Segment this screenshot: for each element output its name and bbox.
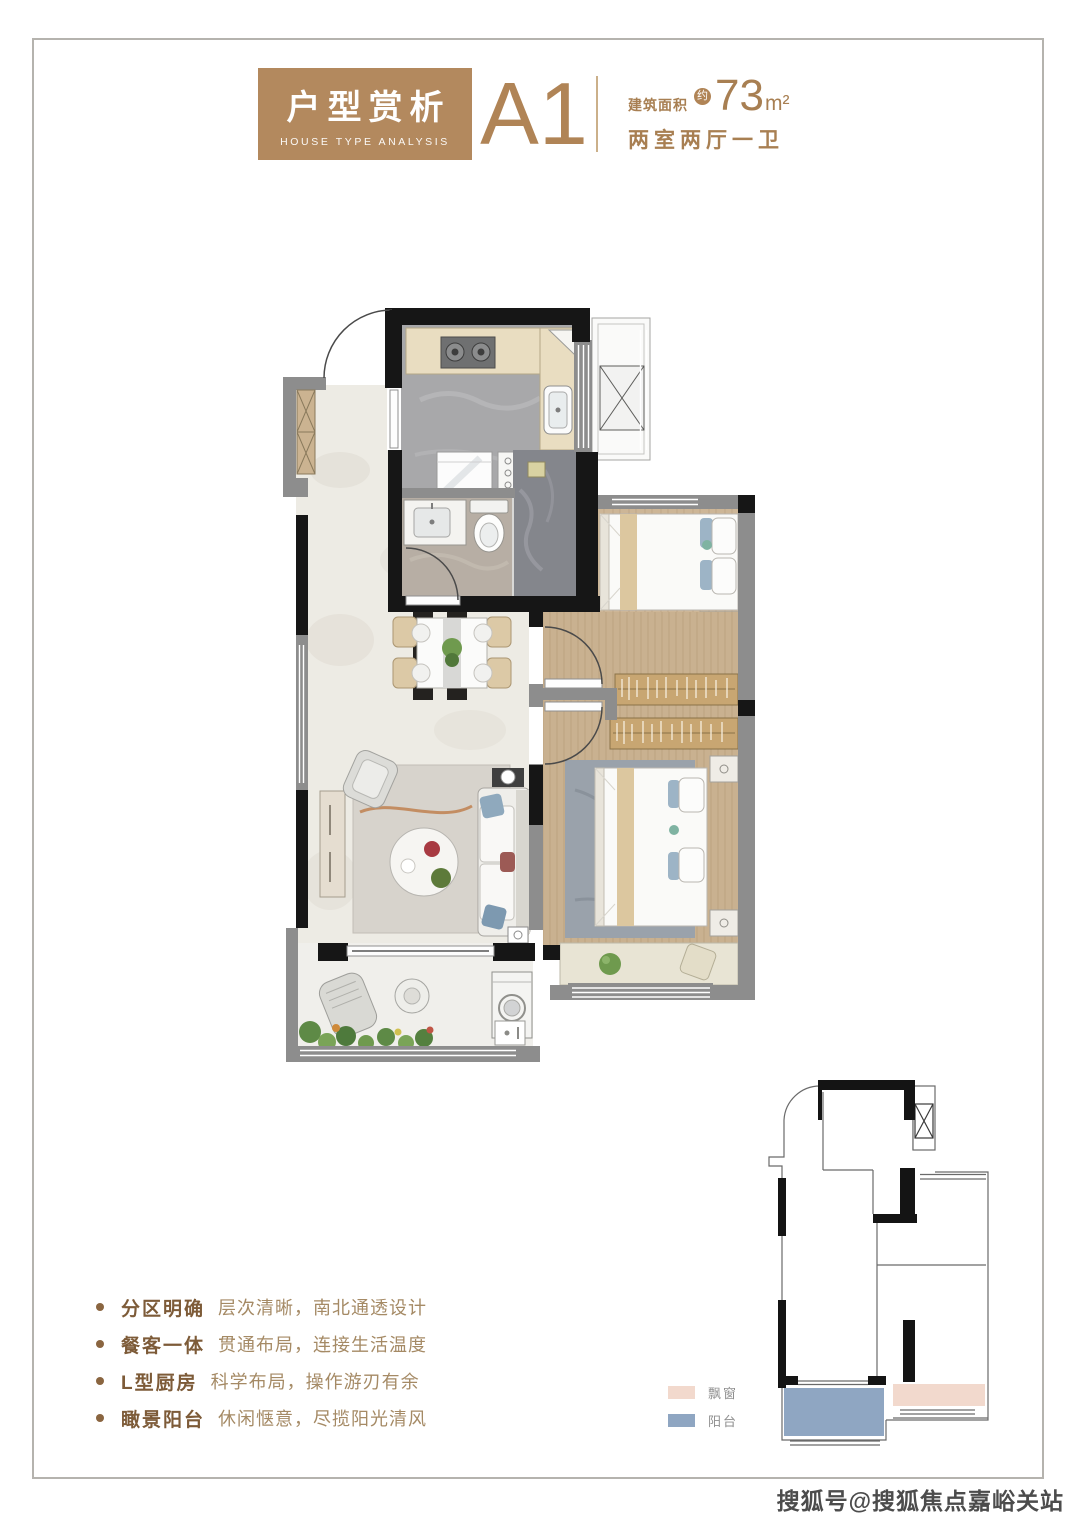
kitchen-sink-icon	[544, 386, 572, 434]
watermark: 搜狐号@搜狐焦点嘉峪关站	[777, 1482, 1064, 1516]
bedroom2-bed	[600, 514, 738, 610]
feature-item: 餐客一体 贯通布局，连接生活温度	[96, 1334, 427, 1354]
room-layout: 两室两厅一卫	[628, 124, 789, 154]
balcony-sink-icon	[495, 1021, 525, 1045]
page-title: 户型赏析	[258, 80, 472, 129]
mini-balcony	[784, 1388, 884, 1445]
feature-label: 瞰景阳台	[121, 1405, 205, 1432]
feature-label: L型厨房	[121, 1368, 198, 1395]
header-specs: 建筑面积 约 73 m² 两室两厅一卫	[612, 68, 789, 160]
balcony-table	[395, 979, 429, 1013]
mini-bay-window	[893, 1384, 985, 1414]
legend-balcony: 阳台	[668, 1411, 738, 1430]
stove-icon	[441, 337, 495, 368]
feature-item: L型厨房 科学布局，操作游刃有余	[96, 1371, 427, 1391]
header: 户型赏析 HOUSE TYPE ANALYSIS A1 建筑面积 约 73 m²…	[258, 68, 789, 160]
approx-badge: 约	[694, 88, 711, 105]
shower-room-area	[513, 450, 576, 608]
mini-walls	[778, 1080, 917, 1388]
sofa	[478, 788, 530, 936]
entry-door	[324, 310, 392, 378]
feature-list: 分区明确 层次清晰，南北通透设计 餐客一体 贯通布局，连接生活温度 L型厨房 科…	[96, 1297, 427, 1445]
bay-window-label: 飘窗	[708, 1383, 738, 1402]
bullet-icon	[96, 1340, 104, 1348]
page-subtitle: HOUSE TYPE ANALYSIS	[258, 136, 472, 148]
floor-plan	[278, 300, 780, 1068]
balcony-sliding-door	[347, 946, 494, 956]
legend-bay-window: 飘窗	[668, 1383, 738, 1402]
nightstand-top	[710, 756, 738, 782]
feature-item: 分区明确 层次清晰，南北通透设计	[96, 1297, 427, 1317]
master-bedroom-area	[543, 612, 738, 945]
equipment-platform	[592, 318, 650, 460]
nightstand-bottom	[710, 910, 738, 936]
side-table-lamp	[492, 768, 524, 787]
master-bed	[595, 768, 707, 926]
header-divider	[596, 76, 598, 152]
wardrobe-bedroom2	[615, 674, 738, 705]
feature-item: 瞰景阳台 休闲惬意，尽揽阳光清风	[96, 1408, 427, 1428]
mini-ac-platform	[913, 1086, 935, 1150]
area-unit: m²	[765, 92, 790, 116]
plant-icon	[599, 953, 621, 975]
balcony-label: 阳台	[708, 1411, 738, 1430]
bullet-icon	[96, 1303, 104, 1311]
feature-desc: 休闲惬意，尽揽阳光清风	[218, 1405, 427, 1431]
bullet-icon	[96, 1377, 104, 1385]
bullet-icon	[96, 1414, 104, 1422]
balcony-swatch	[668, 1414, 695, 1427]
area-label: 建筑面积	[628, 95, 688, 115]
house-type-page: 户型赏析 HOUSE TYPE ANALYSIS A1 建筑面积 约 73 m²…	[0, 0, 1080, 1518]
bay-window-swatch	[668, 1386, 695, 1399]
feature-desc: 贯通布局，连接生活温度	[218, 1331, 427, 1357]
feature-label: 餐客一体	[121, 1331, 205, 1358]
feature-label: 分区明确	[121, 1294, 205, 1321]
ac-unit-icon	[600, 366, 644, 430]
shoe-cabinet	[297, 390, 315, 474]
unit-name: A1	[472, 68, 596, 160]
vanity-sink-icon	[404, 500, 466, 545]
tv-cabinet	[320, 791, 345, 897]
floor-drain-box	[508, 927, 528, 943]
wardrobe-master	[610, 718, 738, 749]
shower-shelf-icon	[528, 462, 545, 477]
master-bay-window	[560, 943, 738, 985]
area-value: 73	[715, 74, 764, 118]
kitchen-door	[390, 390, 398, 448]
feature-desc: 层次清晰，南北通透设计	[218, 1294, 427, 1320]
coffee-table	[390, 828, 458, 896]
mini-floor-plan	[760, 1070, 1060, 1465]
feature-desc: 科学布局，操作游刃有余	[211, 1368, 420, 1394]
header-title-box: 户型赏析 HOUSE TYPE ANALYSIS	[258, 68, 472, 160]
